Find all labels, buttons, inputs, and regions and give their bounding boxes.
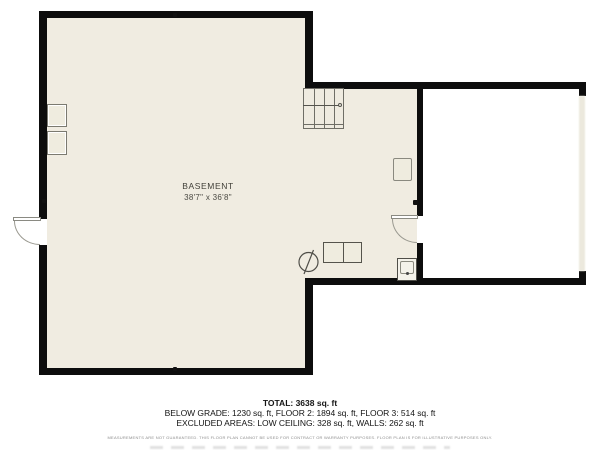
wall-right-lower — [305, 278, 313, 375]
stair-bottom-edge — [304, 124, 343, 125]
wall-end-stub-bottom-right — [579, 271, 586, 278]
middle-door-opening — [417, 216, 423, 243]
wall-extension-bottom — [305, 278, 586, 285]
wall-left — [39, 11, 47, 375]
stair-riser — [334, 89, 335, 128]
wall-marker-dot — [42, 199, 46, 203]
wall-right-upper — [305, 11, 313, 89]
window-box-upper — [47, 104, 67, 127]
window-box-lower — [47, 131, 67, 155]
utility-units — [323, 242, 362, 263]
sump-pump-icon — [297, 248, 321, 276]
area-summary: TOTAL: 3638 sq. ft BELOW GRADE: 1230 sq.… — [0, 398, 600, 428]
wall-middle-upper — [417, 82, 423, 216]
stair-direction-line — [303, 105, 341, 106]
room-dimensions-label: 38'7" x 36'8" — [148, 193, 268, 202]
room-name-label: BASEMENT — [148, 181, 268, 191]
left-door-swing-arc — [14, 221, 40, 245]
stair-direction-dot — [338, 103, 342, 107]
utility-square — [393, 158, 412, 181]
total-area-text: TOTAL: 3638 sq. ft — [0, 398, 600, 408]
open-edge-right — [579, 96, 585, 271]
stairs-icon — [303, 88, 344, 129]
wall-marker-dot — [173, 13, 177, 17]
wall-extension-top — [305, 82, 586, 89]
water-heater-dot — [406, 272, 409, 275]
wall-marker-dot — [413, 200, 418, 205]
left-door-leaf — [13, 217, 41, 221]
wall-end-stub-top-right — [579, 89, 586, 96]
clipped-text-artifact — [150, 446, 450, 449]
middle-door-leaf — [391, 215, 418, 219]
wall-marker-dot — [173, 367, 177, 371]
floorplan-page: BASEMENT 38'7" x 36'8" TOTAL: 3638 sq. f… — [0, 0, 600, 450]
disclaimer-text: MEASUREMENTS ARE NOT GUARANTEED. THIS FL… — [0, 435, 600, 440]
left-door-opening — [39, 219, 47, 245]
utility-units-divider — [343, 243, 344, 262]
stair-riser — [314, 89, 315, 128]
stair-riser — [324, 89, 325, 128]
excluded-areas-text: EXCLUDED AREAS: LOW CEILING: 328 sq. ft,… — [0, 418, 600, 428]
water-heater-icon — [397, 258, 417, 281]
floor-breakdown-text: BELOW GRADE: 1230 sq. ft, FLOOR 2: 1894 … — [0, 408, 600, 418]
